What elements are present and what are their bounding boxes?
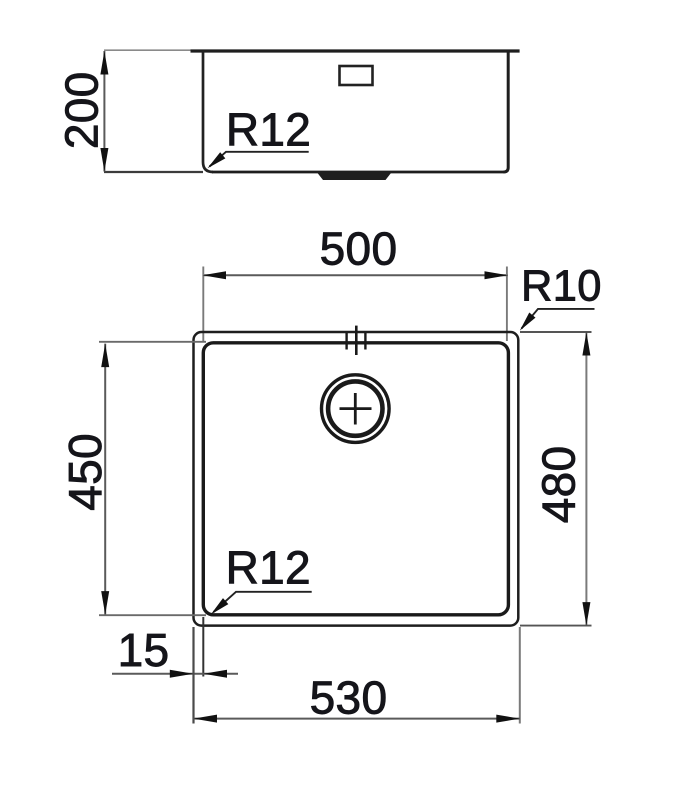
svg-text:500: 500 — [320, 223, 398, 275]
svg-text:480: 480 — [533, 446, 585, 524]
svg-text:200: 200 — [56, 71, 108, 149]
svg-text:530: 530 — [310, 672, 388, 724]
svg-text:R10: R10 — [521, 263, 602, 311]
svg-text:450: 450 — [59, 433, 111, 511]
svg-text:15: 15 — [118, 624, 170, 676]
svg-text:R12: R12 — [226, 542, 311, 594]
svg-text:R12: R12 — [226, 104, 311, 156]
